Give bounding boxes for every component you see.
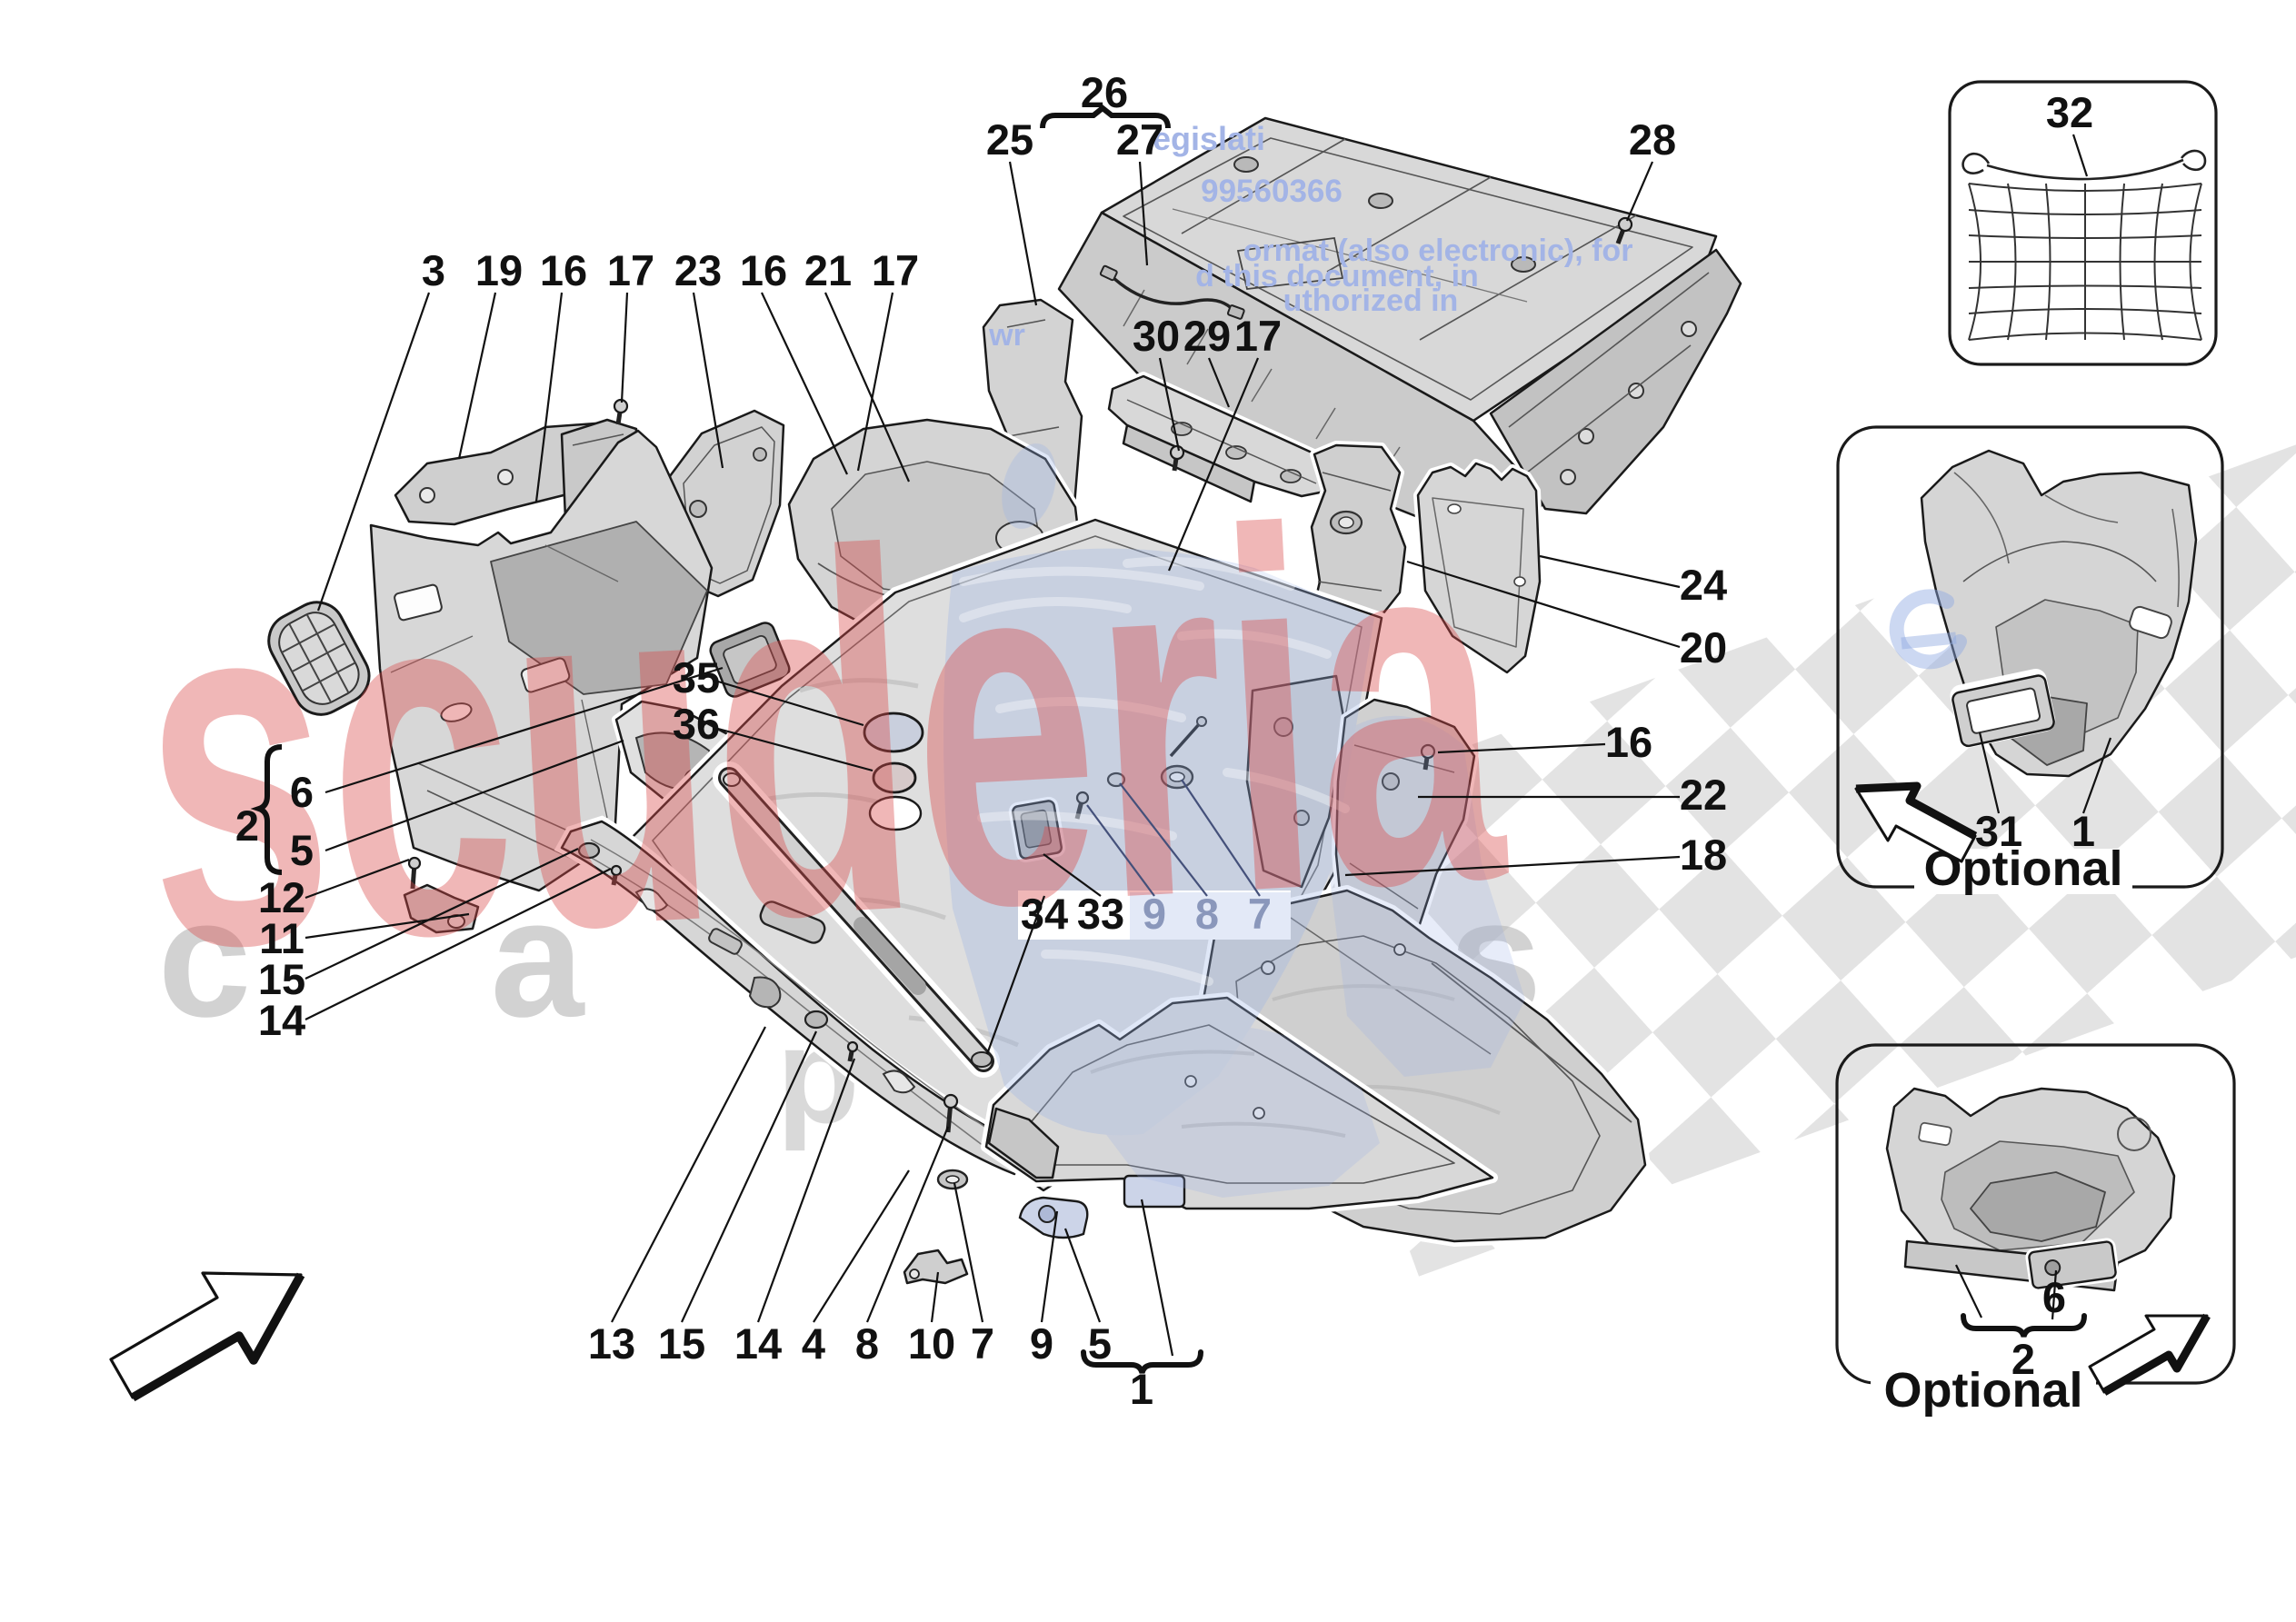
svg-text:29: 29 bbox=[1183, 312, 1231, 360]
svg-text:5: 5 bbox=[1088, 1319, 1112, 1368]
svg-text:32: 32 bbox=[2046, 88, 2093, 136]
svg-text:17: 17 bbox=[1234, 312, 1282, 360]
svg-text:10: 10 bbox=[908, 1319, 955, 1368]
svg-text:scuderia: scuderia bbox=[130, 416, 1514, 1055]
svg-text:35: 35 bbox=[673, 653, 720, 702]
svg-text:23: 23 bbox=[674, 246, 722, 294]
svg-text:19: 19 bbox=[475, 246, 523, 294]
svg-text:16: 16 bbox=[540, 246, 587, 294]
svg-text:7: 7 bbox=[1248, 890, 1272, 938]
svg-text:5: 5 bbox=[290, 826, 314, 874]
svg-text:8: 8 bbox=[855, 1319, 879, 1368]
svg-text:20: 20 bbox=[1680, 623, 1727, 672]
svg-text:7: 7 bbox=[971, 1319, 994, 1368]
svg-text:28: 28 bbox=[1629, 115, 1676, 164]
svg-text:uthorized in: uthorized in bbox=[1283, 284, 1459, 318]
svg-text:2: 2 bbox=[2011, 1335, 2035, 1383]
svg-text:14: 14 bbox=[258, 996, 305, 1044]
svg-text:25: 25 bbox=[986, 115, 1033, 164]
svg-text:17: 17 bbox=[872, 246, 919, 294]
svg-text:34: 34 bbox=[1021, 890, 1068, 938]
svg-text:8: 8 bbox=[1195, 890, 1219, 938]
svg-text:6: 6 bbox=[2042, 1273, 2066, 1321]
svg-text:6: 6 bbox=[290, 768, 314, 816]
svg-text:4: 4 bbox=[802, 1319, 825, 1368]
svg-text:9: 9 bbox=[1030, 1319, 1053, 1368]
svg-text:15: 15 bbox=[658, 1319, 705, 1368]
svg-text:3: 3 bbox=[422, 246, 445, 294]
svg-text:18: 18 bbox=[1680, 831, 1727, 879]
svg-text:1: 1 bbox=[2071, 807, 2095, 855]
svg-text:16: 16 bbox=[1605, 718, 1652, 766]
svg-text:21: 21 bbox=[804, 246, 852, 294]
svg-text:13: 13 bbox=[588, 1319, 635, 1368]
svg-text:16: 16 bbox=[740, 246, 787, 294]
svg-text:22: 22 bbox=[1680, 771, 1727, 819]
svg-text:14: 14 bbox=[734, 1319, 782, 1368]
svg-text:27: 27 bbox=[1116, 115, 1163, 164]
svg-text:36: 36 bbox=[673, 700, 720, 748]
svg-text:33: 33 bbox=[1077, 890, 1124, 938]
svg-text:Optional: Optional bbox=[1884, 1363, 2083, 1418]
svg-text:24: 24 bbox=[1680, 561, 1727, 609]
svg-text:9: 9 bbox=[1143, 890, 1166, 938]
svg-text:wr: wr bbox=[988, 318, 1025, 353]
svg-text:99560366: 99560366 bbox=[1201, 174, 1343, 209]
svg-text:31: 31 bbox=[1975, 807, 2022, 855]
svg-text:17: 17 bbox=[607, 246, 654, 294]
svg-text:30: 30 bbox=[1133, 312, 1180, 360]
